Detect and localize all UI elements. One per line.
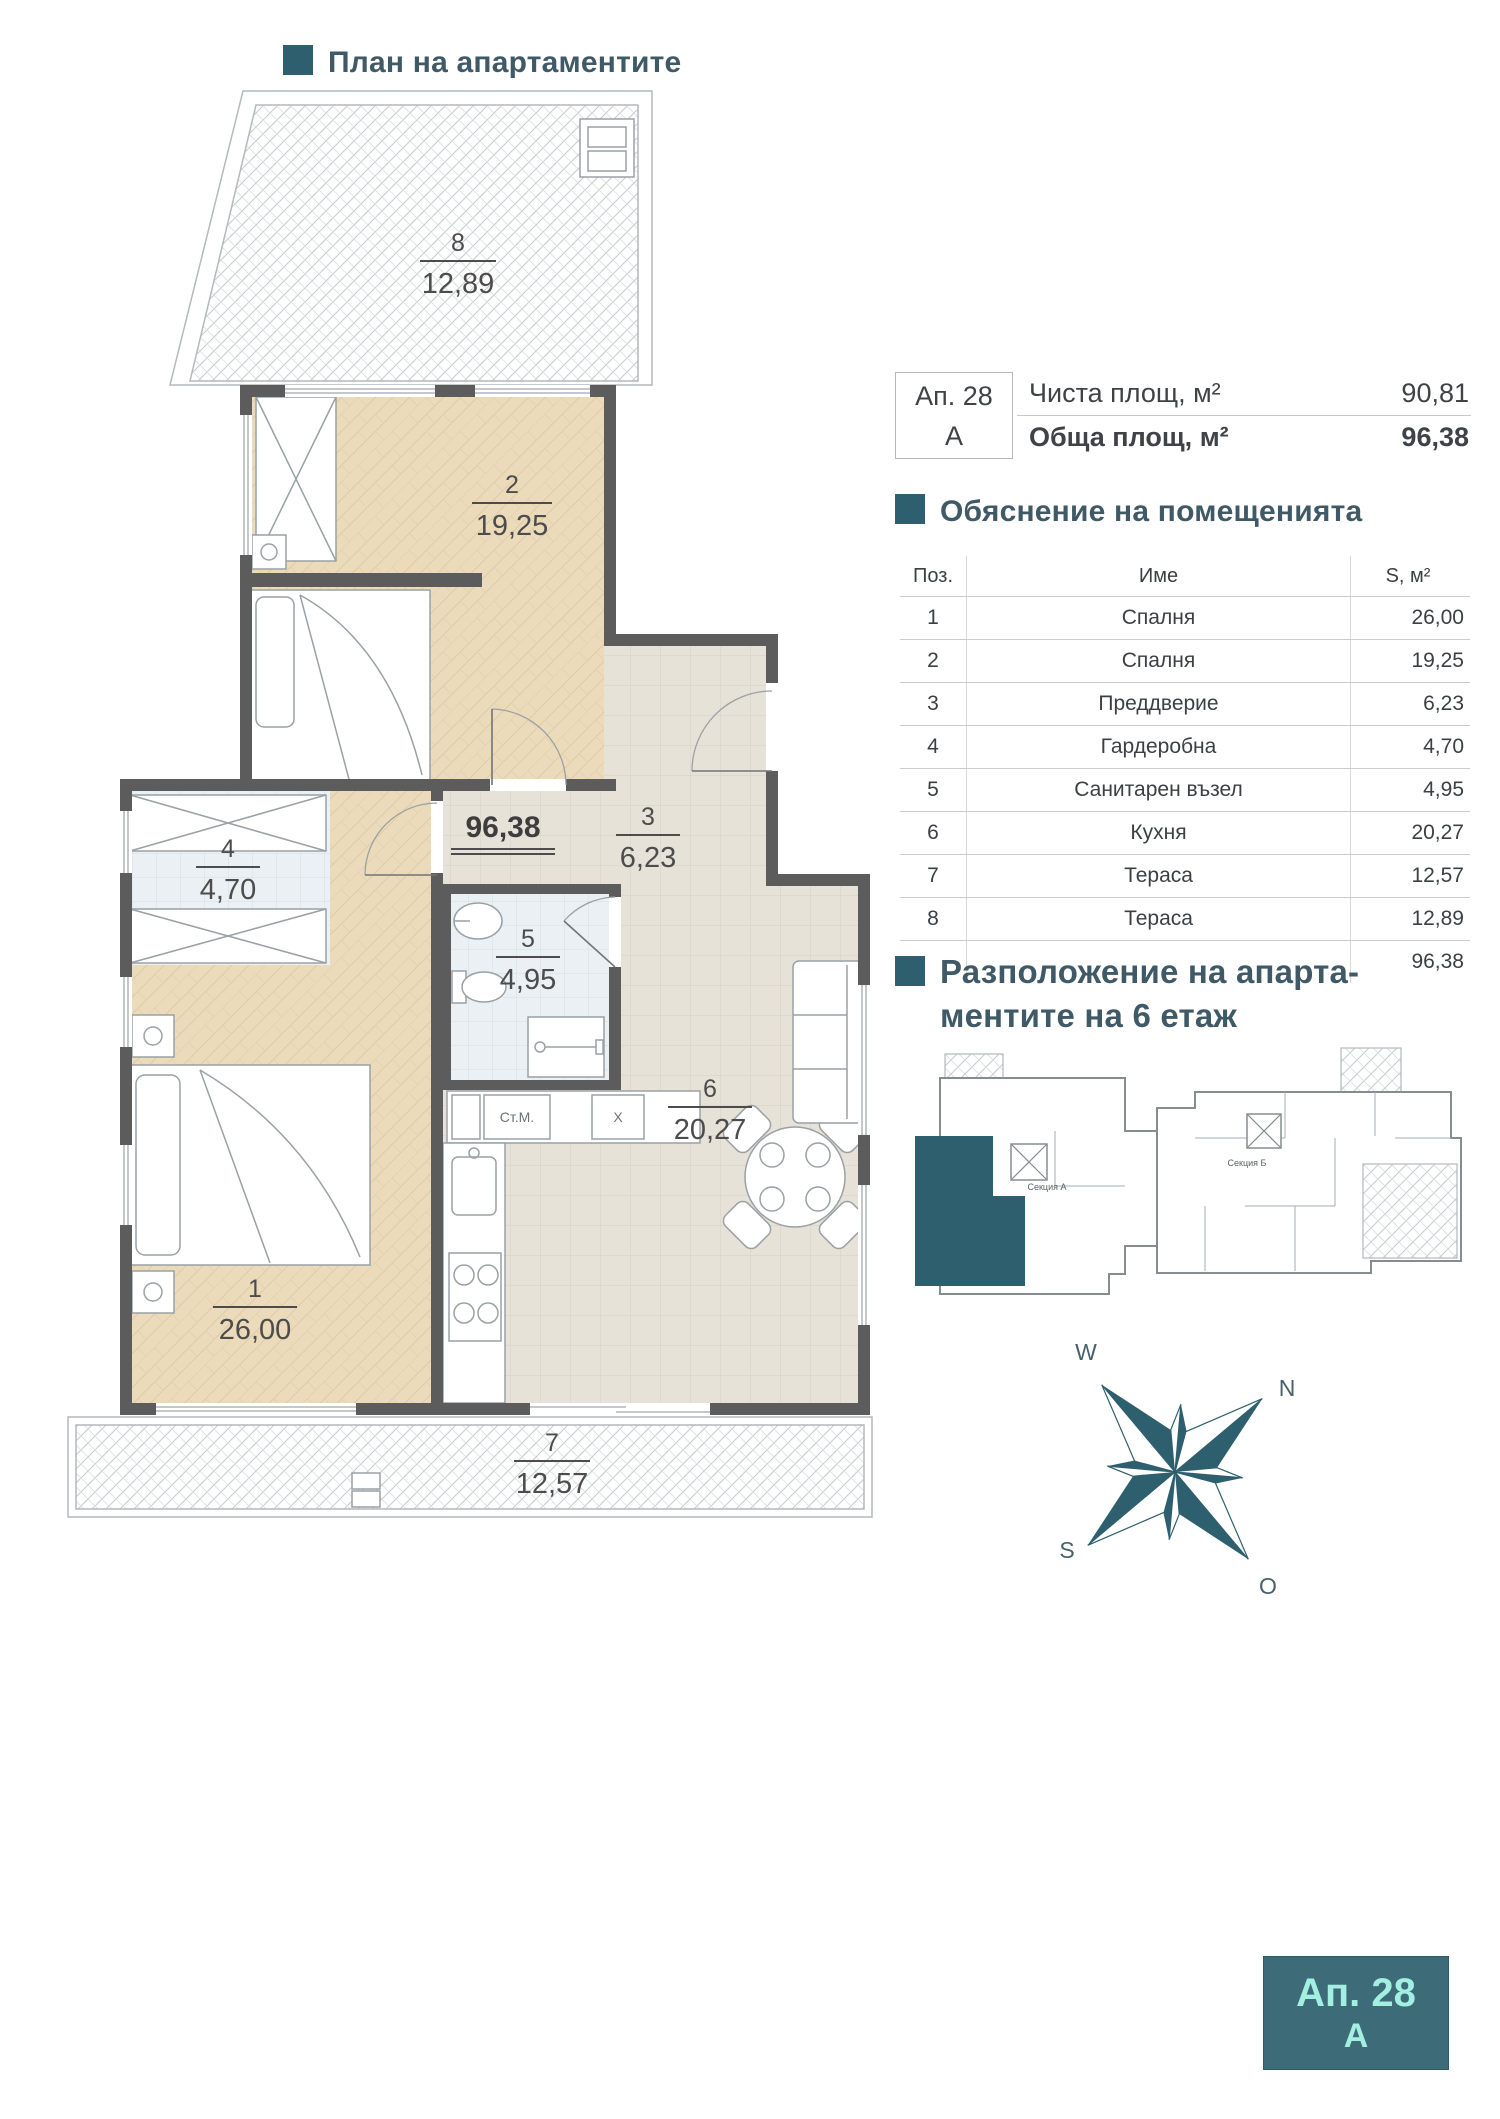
- svg-text:6: 6: [703, 1075, 717, 1103]
- svg-text:26,00: 26,00: [219, 1314, 292, 1346]
- apartment-badge: Ап. 28 А: [1263, 1956, 1449, 2070]
- svg-text:19,25: 19,25: [476, 510, 549, 542]
- apartment-letter: А: [945, 416, 963, 456]
- net-area-row: Чиста площ, м² 90,81: [1017, 372, 1471, 415]
- badge-apartment-number: Ап. 28: [1296, 1970, 1416, 2016]
- floor-overview-miniplan: Секция А Секция Б: [895, 1046, 1470, 1318]
- apartment-info-table: Ап. 28 А Чиста площ, м² 90,81 Обща площ,…: [895, 372, 1471, 459]
- elevator-icon: [1011, 1144, 1047, 1180]
- svg-text:20,27: 20,27: [674, 1114, 747, 1146]
- compass-o: O: [1259, 1573, 1277, 1599]
- page-title: План на апартаментите: [283, 43, 681, 83]
- compass-w: W: [1075, 1339, 1097, 1365]
- wall-stub: [252, 573, 482, 587]
- section-bullet-icon: [895, 494, 925, 524]
- svg-text:Ст.М.: Ст.М.: [500, 1109, 534, 1125]
- svg-text:12,57: 12,57: [516, 1468, 589, 1500]
- svg-text:X: X: [613, 1109, 623, 1125]
- stove-icon: [449, 1253, 501, 1341]
- section-a-label: Секция А: [1027, 1182, 1066, 1192]
- svg-text:4,70: 4,70: [200, 874, 256, 906]
- table-row: 7Тераса12,57: [900, 855, 1470, 898]
- compass-n: N: [1279, 1375, 1296, 1401]
- nightstand: [132, 1015, 174, 1057]
- svg-text:3: 3: [641, 803, 655, 831]
- table-row: 6Кухня20,27: [900, 812, 1470, 855]
- svg-text:96,38: 96,38: [465, 811, 540, 844]
- table-row: 5Санитарен възел4,95: [900, 769, 1470, 812]
- shower-icon: [528, 1017, 604, 1077]
- total-area-value: 96,38: [1401, 422, 1469, 453]
- net-area-value: 90,81: [1401, 378, 1469, 409]
- svg-text:8: 8: [451, 229, 465, 257]
- nightstand: [132, 1271, 174, 1313]
- svg-text:5: 5: [521, 925, 535, 953]
- nightstand: [252, 535, 286, 569]
- floorplan-page: План на апартаментите: [0, 0, 1500, 2119]
- terrace-7: [68, 1417, 872, 1517]
- table-row: 8Тераса12,89: [900, 898, 1470, 941]
- table-row: 3Преддверие6,23: [900, 683, 1470, 726]
- location-heading: Разположение на апарта- ментите на 6 ета…: [895, 950, 1435, 1038]
- section-b-label: Секция Б: [1228, 1158, 1267, 1168]
- table-row: 2Спалня19,25: [900, 640, 1470, 683]
- mini-terrace: [1341, 1048, 1401, 1094]
- kitchen-sink: [452, 1157, 496, 1215]
- mini-terrace: [1363, 1164, 1457, 1258]
- page-title-text: План на апартаментите: [328, 43, 681, 83]
- table-row: 1Спалня26,00: [900, 597, 1470, 640]
- sofa: [793, 961, 863, 1123]
- svg-text:4: 4: [221, 835, 235, 863]
- svg-text:7: 7: [545, 1429, 559, 1457]
- compass-rose-icon: W N S O: [1025, 1332, 1325, 1612]
- svg-text:4,95: 4,95: [500, 964, 556, 996]
- legend-header-row: Поз. Име S, м²: [900, 556, 1470, 597]
- svg-text:1: 1: [248, 1275, 262, 1303]
- rooms-legend-table: Поз. Име S, м² 1Спалня26,00 2Спалня19,25…: [900, 556, 1470, 983]
- ac-unit-icon: [580, 119, 634, 177]
- legend-heading: Обяснение на помещенията: [895, 492, 1362, 532]
- apartment-id-box: Ап. 28 А: [895, 372, 1013, 459]
- svg-text:6,23: 6,23: [620, 842, 676, 874]
- section-bullet-icon: [283, 45, 313, 75]
- terrace-slider: [530, 1403, 710, 1415]
- badge-apartment-letter: А: [1344, 2016, 1369, 2056]
- total-area-row: Обща площ, м² 96,38: [1017, 415, 1471, 459]
- terrace-8: [170, 91, 652, 385]
- svg-text:12,89: 12,89: [422, 268, 495, 300]
- bed: [250, 590, 430, 783]
- svg-text:2: 2: [505, 471, 519, 499]
- table-row: 4Гардеробна4,70: [900, 726, 1470, 769]
- apartment-floorplan: Ст.М. X: [60, 85, 890, 1525]
- compass-s: S: [1059, 1537, 1074, 1563]
- apartment-number: Ап. 28: [915, 376, 993, 416]
- bed: [130, 1065, 370, 1265]
- section-bullet-icon: [895, 956, 925, 986]
- elevator-icon: [1247, 1114, 1281, 1148]
